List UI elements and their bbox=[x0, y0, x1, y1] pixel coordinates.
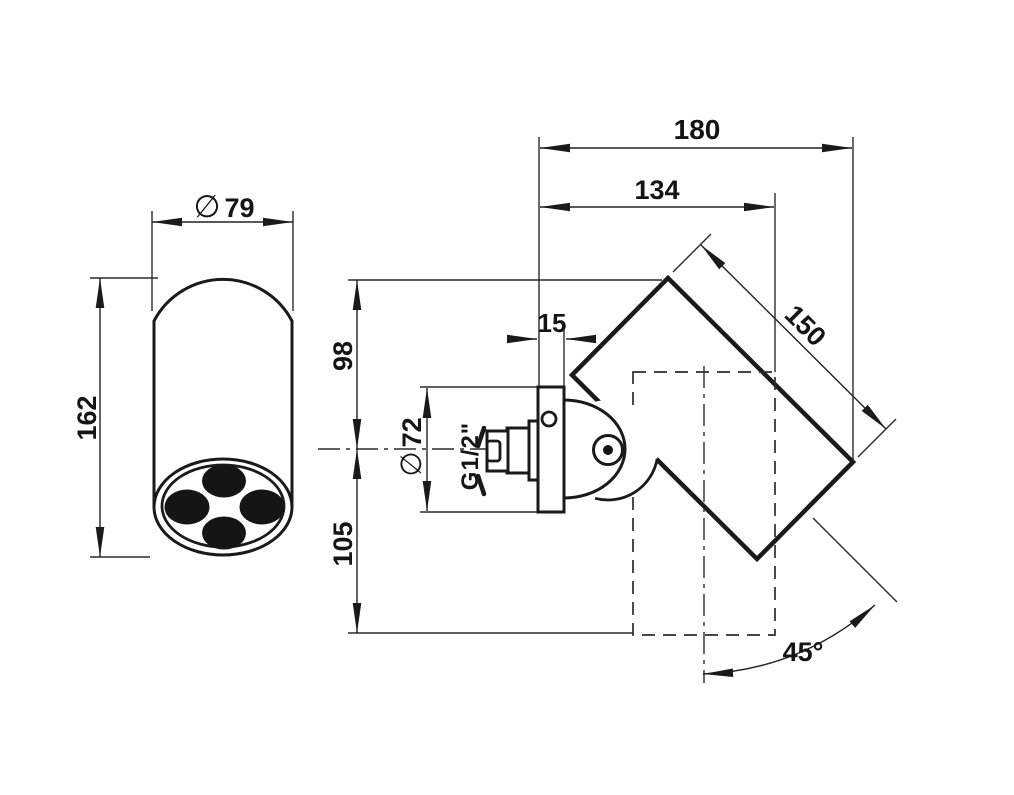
dim-label-total-depth-180: 180 bbox=[674, 114, 721, 145]
front-view bbox=[154, 279, 292, 555]
nozzle-bottom bbox=[202, 517, 246, 550]
side-view bbox=[318, 137, 897, 683]
diameter-symbol: ∅ bbox=[193, 189, 220, 225]
technical-drawing-page: ∅79 162 bbox=[0, 0, 1014, 795]
dim-label-plate-diameter-72: ∅72 bbox=[394, 417, 428, 476]
extension-line bbox=[673, 234, 711, 272]
dim-label-diameter-79: ∅79 bbox=[193, 189, 254, 225]
diameter-value: 79 bbox=[224, 193, 254, 223]
wall-plate bbox=[538, 387, 564, 512]
dim-label-plate-thickness-15: 15 bbox=[538, 308, 567, 338]
connector-pipe-end bbox=[487, 431, 508, 471]
nozzle-top bbox=[202, 465, 246, 498]
body-axis-extension-line bbox=[813, 518, 897, 602]
dim-label-swivel-angle-45: 45° bbox=[783, 637, 824, 667]
diameter-value: 72 bbox=[397, 417, 427, 447]
nozzle-right bbox=[240, 490, 285, 525]
extension-line bbox=[858, 419, 896, 457]
dim-label-above-axis-98: 98 bbox=[328, 341, 358, 371]
diameter-symbol: ∅ bbox=[394, 451, 428, 476]
shower-head-dimension-drawing: ∅79 162 bbox=[0, 0, 1014, 795]
pivot-center-dot bbox=[603, 445, 613, 455]
connector-nut bbox=[507, 428, 529, 473]
dim-label-body-offset-134: 134 bbox=[634, 175, 679, 205]
dim-label-below-axis-105: 105 bbox=[328, 521, 358, 566]
dim-label-height-162: 162 bbox=[72, 395, 102, 440]
dim-label-body-length-150: 150 bbox=[779, 299, 832, 352]
nozzle-left bbox=[165, 490, 210, 525]
